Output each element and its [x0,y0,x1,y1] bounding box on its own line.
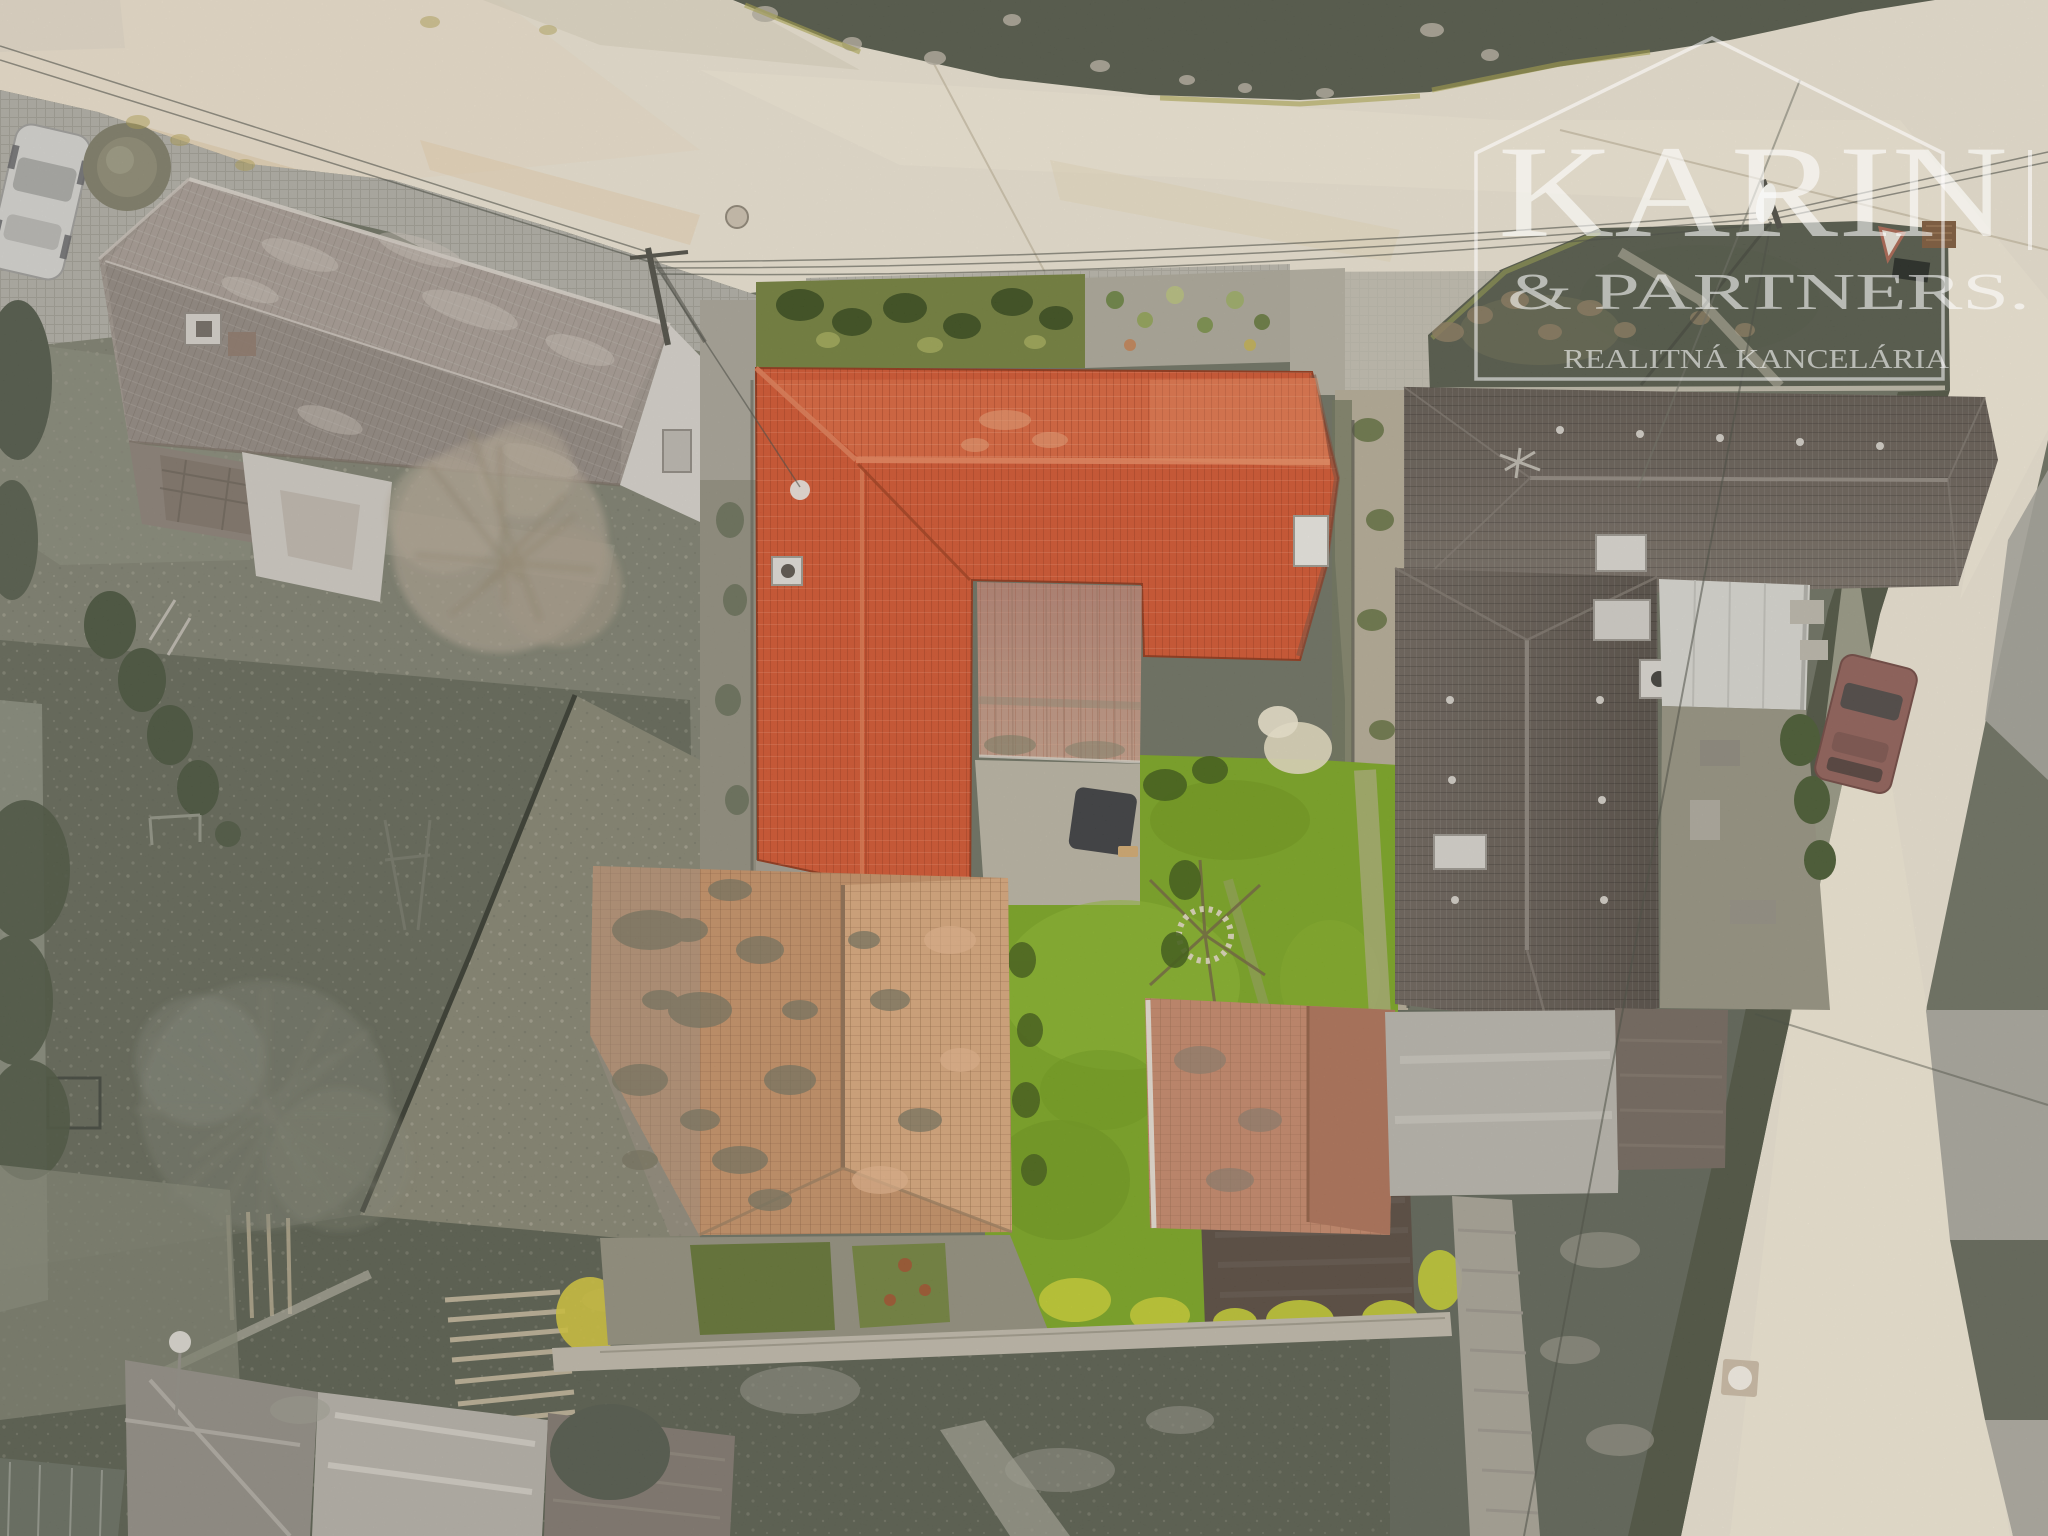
svg-text:KARIN: KARIN [1498,118,2008,265]
svg-text:REALITNÁ KANCELÁRIA: REALITNÁ KANCELÁRIA [1563,344,1950,374]
svg-text:& PARTNERS.: & PARTNERS. [1507,264,2030,321]
